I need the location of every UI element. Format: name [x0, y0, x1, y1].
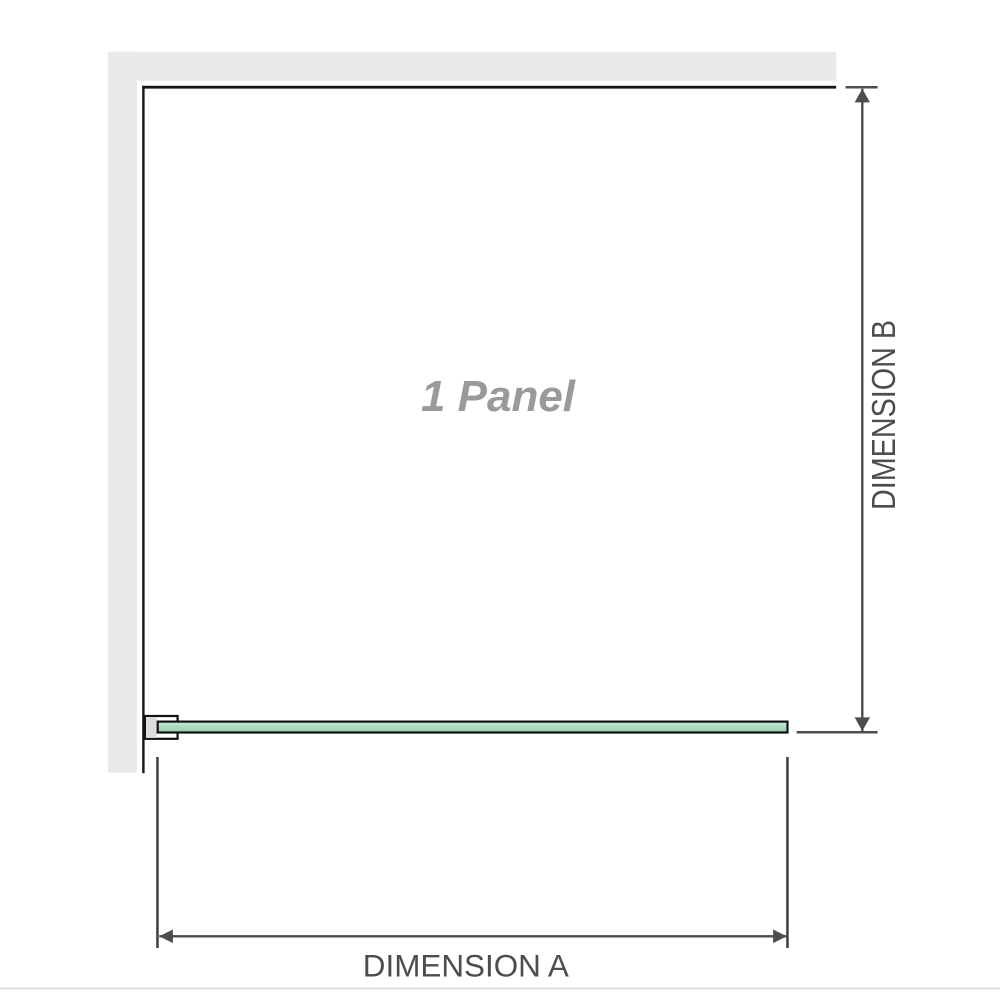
svg-text:DIMENSION B: DIMENSION B	[865, 320, 902, 510]
svg-text:DIMENSION A: DIMENSION A	[363, 948, 569, 984]
svg-text:1 Panel: 1 Panel	[421, 372, 576, 421]
